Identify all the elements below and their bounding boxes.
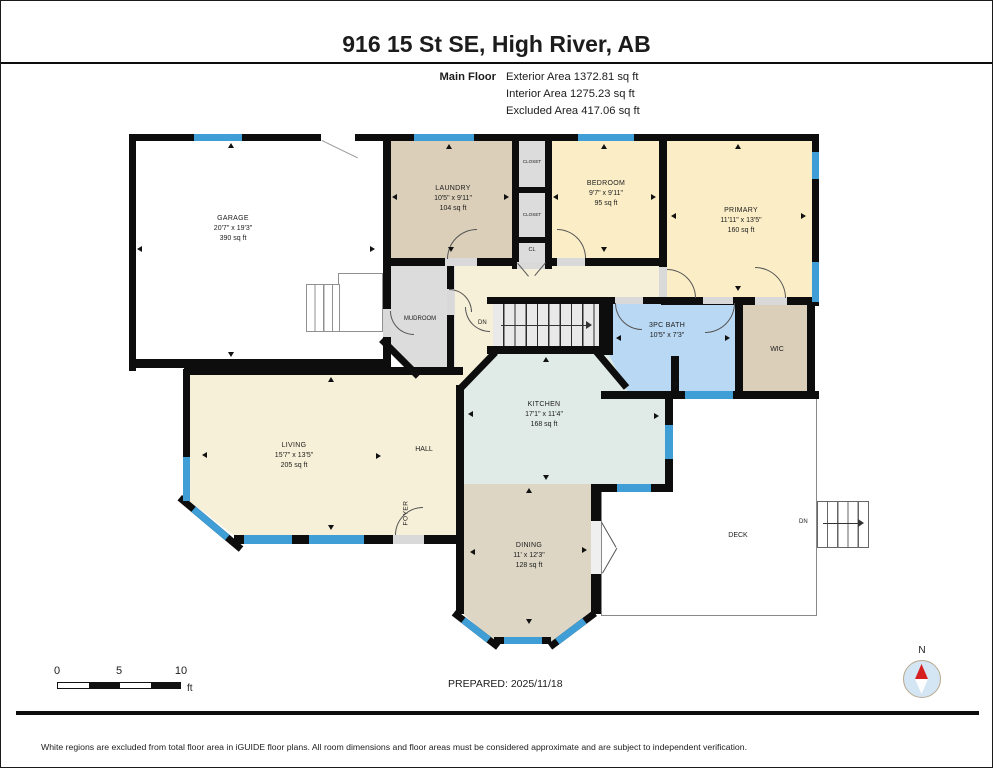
compass-n-label: N xyxy=(918,645,925,656)
dimension-arrow xyxy=(601,144,607,149)
room-label-dining: DINING 11' x 12'3" 128 sq ft xyxy=(513,541,545,570)
dimension-arrow xyxy=(448,247,454,252)
page-title: 916 15 St SE, High River, AB xyxy=(1,31,992,58)
header-divider xyxy=(1,62,993,64)
room-label-laundry: LAUNDRY 10'5" x 9'11" 104 sq ft xyxy=(434,184,472,213)
dimension-arrow xyxy=(543,357,549,362)
room-label-closet-mid: CLOSET xyxy=(523,212,541,218)
dimension-arrow xyxy=(672,382,678,387)
dimension-arrow xyxy=(392,194,397,200)
dimension-arrow xyxy=(137,246,142,252)
wall xyxy=(591,484,601,521)
dimension-arrow xyxy=(328,377,334,382)
scale-bar-segment xyxy=(151,683,180,688)
wall xyxy=(735,297,743,397)
dimension-arrow xyxy=(228,143,234,148)
footer-divider xyxy=(16,711,979,715)
room-label-garage: GARAGE 20'7" x 19'3" 390 sq ft xyxy=(214,214,252,243)
window xyxy=(812,262,819,302)
wall xyxy=(807,297,815,399)
dimension-arrow xyxy=(582,547,587,553)
window xyxy=(578,134,634,141)
window xyxy=(685,391,733,399)
door-opening xyxy=(755,297,787,305)
interior-area: Interior Area 1275.23 sq ft xyxy=(506,88,635,100)
scale-bar-segment xyxy=(58,683,89,688)
dimension-arrow xyxy=(616,335,621,341)
window xyxy=(504,637,542,644)
main-stairs-dn-label: DN xyxy=(478,320,487,326)
wall xyxy=(545,134,552,265)
dimension-arrow xyxy=(725,335,730,341)
wall xyxy=(184,367,463,375)
window xyxy=(244,535,292,544)
door-opening xyxy=(659,267,667,297)
dimension-arrow xyxy=(601,247,607,252)
room-label-foyer: FOYER xyxy=(403,501,410,526)
dimension-arrow xyxy=(228,352,234,357)
wall xyxy=(671,356,679,399)
main-stairs-arrow-head xyxy=(586,321,592,329)
room-label-mudroom: MUDROOM xyxy=(404,315,436,323)
footer-disclaimer: White regions are excluded from total fl… xyxy=(41,742,747,752)
dimension-arrow xyxy=(468,411,473,417)
wall xyxy=(456,385,464,614)
garage-landing xyxy=(338,273,383,332)
room-label-closet-top: CLOSET xyxy=(523,159,541,165)
window xyxy=(309,535,364,544)
dimension-arrow xyxy=(470,549,475,555)
room-label-cl: CL xyxy=(528,247,535,255)
room-label-bath: 3PC BATH 10'5" x 7'3" xyxy=(649,321,685,341)
prepared-date: PREPARED: 2025/11/18 xyxy=(448,678,563,690)
deck-stairs-arrow-head xyxy=(858,519,864,527)
dimension-arrow xyxy=(735,286,741,291)
wall xyxy=(659,134,667,269)
door-opening xyxy=(557,258,585,266)
room-label-deck: DECK xyxy=(728,531,747,541)
window xyxy=(665,425,673,459)
garage-door-leaf xyxy=(321,140,357,159)
room-label-kitchen: KITCHEN 17'1" x 11'4" 168 sq ft xyxy=(525,400,563,429)
scale-tick-5: 5 xyxy=(116,665,122,677)
compass-icon xyxy=(903,660,941,698)
scale-bar xyxy=(57,682,181,689)
door-opening xyxy=(393,535,424,544)
room-label-bedroom: BEDROOM 9'7" x 9'11" 95 sq ft xyxy=(587,179,625,208)
wall xyxy=(591,574,601,614)
scale-bar-segment xyxy=(120,683,151,688)
scale-tick-10: 10 xyxy=(175,665,187,677)
deck-stairs-arrow-line xyxy=(823,523,859,524)
excluded-area: Excluded Area 417.06 sq ft xyxy=(506,105,640,117)
room-label-hall: HALL xyxy=(415,445,433,455)
deck-stairs-dn-label: DN xyxy=(799,519,808,525)
door-opening xyxy=(321,134,355,141)
dimension-arrow xyxy=(526,619,532,624)
door-opening xyxy=(445,258,477,266)
garage-stairs xyxy=(306,284,340,332)
room-label-primary: PRIMARY 11'11" x 13'5" 160 sq ft xyxy=(720,206,761,235)
dimension-arrow xyxy=(504,194,509,200)
window xyxy=(414,134,474,141)
wall xyxy=(487,297,613,304)
exterior-area: Exterior Area 1372.81 sq ft xyxy=(506,71,638,83)
dimension-arrow xyxy=(801,213,806,219)
room-label-wic: WIC xyxy=(770,345,784,355)
window xyxy=(194,134,242,141)
window xyxy=(183,457,190,501)
dimension-arrow xyxy=(553,194,558,200)
window xyxy=(617,484,651,492)
main-stairs-arrow-line xyxy=(501,325,587,326)
dimension-arrow xyxy=(526,488,532,493)
dimension-arrow xyxy=(735,144,741,149)
dimension-arrow xyxy=(651,194,656,200)
dimension-arrow xyxy=(543,475,549,480)
door-opening xyxy=(591,521,601,574)
wall xyxy=(447,261,454,375)
window xyxy=(812,152,819,179)
dimension-arrow xyxy=(654,413,659,419)
dimension-arrow xyxy=(370,246,375,252)
scale-tick-0: 0 xyxy=(54,665,60,677)
scale-bar-segment xyxy=(89,683,120,688)
room-label-living: LIVING 15'7" x 13'5" 205 sq ft xyxy=(275,441,313,470)
scale-unit-label: ft xyxy=(187,683,193,694)
floor-label: Main Floor xyxy=(381,71,496,83)
wall xyxy=(129,134,136,371)
compass-needle-south xyxy=(915,679,928,694)
floorplan-page: 916 15 St SE, High River, AB Main Floor … xyxy=(0,0,993,768)
wall xyxy=(597,297,613,355)
compass-needle-north xyxy=(915,664,928,679)
dimension-arrow xyxy=(446,144,452,149)
dimension-arrow xyxy=(376,453,381,459)
dimension-arrow xyxy=(671,213,676,219)
dimension-arrow xyxy=(328,525,334,530)
dimension-arrow xyxy=(202,452,207,458)
wall xyxy=(512,134,519,269)
